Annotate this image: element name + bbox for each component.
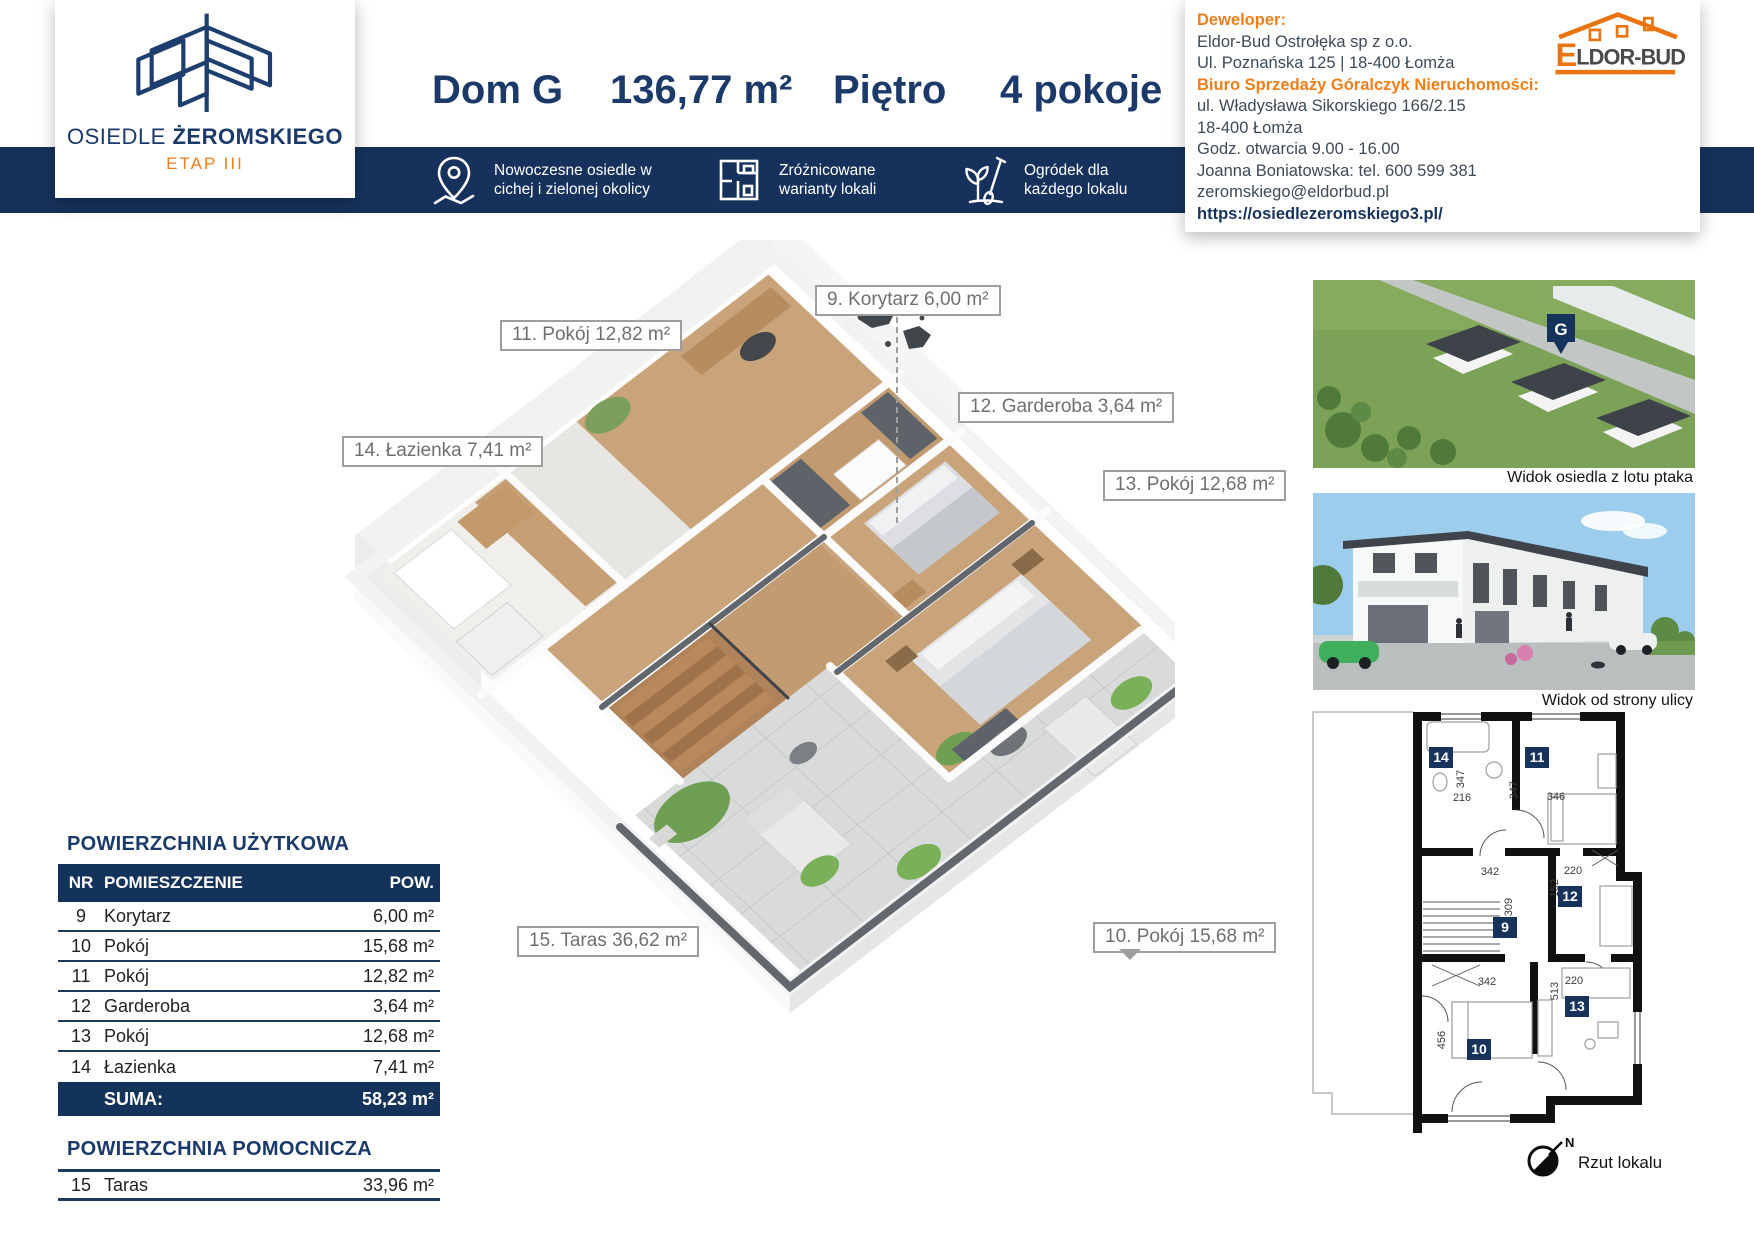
svg-text:513: 513 (1549, 982, 1561, 1000)
flyer-page: Nowoczesne osiedle w cichej i zielonej o… (0, 0, 1754, 1240)
svg-text:309: 309 (1503, 898, 1515, 916)
svg-text:220: 220 (1565, 975, 1583, 987)
row-nr: 9 (58, 906, 104, 927)
website-link[interactable]: https://osiedlezeromskiego3.pl/ (1197, 205, 1443, 223)
row-area: 7,41 m² (330, 1057, 440, 1078)
plan2d-caption: Rzut lokalu (1578, 1153, 1662, 1172)
badge-14: 14 (1433, 749, 1449, 765)
eldorbud-logo-rest: LDOR-BUD (1576, 44, 1685, 69)
row-nr: 12 (58, 996, 104, 1017)
row-name: Taras (104, 1175, 330, 1196)
estate-logo-name-light: OSIEDLE (67, 124, 166, 149)
room-label-pokoj-10: 10. Pokój 15,68 m² (1093, 922, 1276, 953)
room-label-garderoba: 12. Garderoba 3,64 m² (958, 392, 1174, 423)
compass-icon: N (1529, 1135, 1574, 1175)
developer-card: E LDOR-BUD Deweloper: Eldor-Bud Ostrołęk… (1185, 0, 1700, 232)
feature-variants-line2: warianty lokali (779, 180, 876, 199)
table-row: 14 Łazienka 7,41 m² (58, 1052, 440, 1082)
room-label-taras: 15. Taras 36,62 m² (517, 926, 699, 957)
opening-hours: Godz. otwarcia 9.00 - 16.00 (1197, 139, 1688, 161)
estate-logo-card: OSIEDLE ŻEROMSKIEGO ETAP III (55, 0, 355, 198)
photo-street-svg (1313, 493, 1695, 690)
page-title-rooms: 4 pokoje (1000, 68, 1162, 113)
badge-10: 10 (1471, 1041, 1487, 1057)
estate-logo-etap: ETAP III (55, 154, 355, 174)
contact-email: zeromskiego@eldorbud.pl (1197, 182, 1688, 204)
row-nr: 13 (58, 1026, 104, 1047)
feature-variants: Zróżnicowane warianty lokali (713, 147, 876, 213)
room-label-pokoj-13: 13. Pokój 12,68 m² (1103, 470, 1286, 501)
garden-icon (958, 154, 1010, 206)
row-nr: 15 (58, 1175, 104, 1196)
eldorbud-logo-e: E (1555, 36, 1577, 73)
svg-text:220: 220 (1564, 865, 1582, 877)
sales-office-address2: 18-400 Łomża (1197, 118, 1688, 140)
feature-garden: Ogródek dla każdego lokalu (958, 147, 1127, 213)
room-label-lazienka: 14. Łazienka 7,41 m² (342, 436, 543, 467)
feature-garden-line2: każdego lokalu (1024, 180, 1127, 199)
sum-value: 58,23 m² (330, 1089, 440, 1110)
photo-aerial-svg: G (1313, 280, 1695, 468)
photo-aerial-caption: Widok osiedla z lotu ptaka (1313, 469, 1693, 487)
contact-person: Joanna Boniatowska: tel. 600 599 381 (1197, 161, 1688, 183)
aux-table-title: POWIERZCHNIA POMOCNICZA (67, 1138, 440, 1161)
neighbour-outline (1313, 712, 1413, 1114)
feature-location-line2: cichej i zielonej okolicy (494, 180, 652, 199)
room-label-pokoj-11: 11. Pokój 12,82 m² (500, 320, 682, 351)
floorplan-icon (713, 154, 765, 206)
badge-9: 9 (1501, 919, 1509, 935)
compass-north-label: N (1565, 1135, 1574, 1150)
estate-logo-name-bold: ŻEROMSKIEGO (172, 124, 343, 149)
col-nr: NR (58, 873, 104, 893)
page-title-house: Dom G (432, 68, 563, 113)
photo-aerial-view: G (1313, 280, 1695, 468)
aux-table-row: 15 Taras 33,96 m² (58, 1169, 440, 1201)
plan3d-floors (362, 262, 1175, 999)
row-nr: 11 (58, 966, 104, 987)
svg-text:216: 216 (1453, 792, 1471, 804)
svg-text:342: 342 (1478, 976, 1496, 988)
feature-location: Nowoczesne osiedle w cichej i zielonej o… (428, 147, 652, 213)
pin-label: G (1554, 320, 1567, 339)
svg-text:347: 347 (1455, 770, 1467, 788)
badge-13: 13 (1569, 998, 1585, 1014)
badge-11: 11 (1530, 749, 1545, 765)
page-title-area: 136,77 m² (610, 68, 792, 113)
badge-12: 12 (1562, 888, 1578, 904)
table-sum-row: SUMA: 58,23 m² (58, 1082, 440, 1116)
svg-text:346: 346 (1547, 791, 1565, 803)
corridor-pointer-line (896, 317, 898, 523)
row-area: 33,96 m² (330, 1175, 440, 1196)
feature-variants-line1: Zróżnicowane (779, 161, 876, 180)
room-label-korytarz: 9. Korytarz 6,00 m² (815, 285, 1001, 316)
row-nr: 14 (58, 1057, 104, 1078)
floor-plan-2d: 216 347 347 346 342 220 152 309 513 342 … (1300, 702, 1710, 1218)
svg-text:342: 342 (1481, 866, 1499, 878)
estate-logo-name: OSIEDLE ŻEROMSKIEGO (55, 124, 355, 150)
map-pin-icon (428, 154, 480, 206)
row-name: Łazienka (104, 1057, 330, 1078)
row-nr: 10 (58, 936, 104, 957)
feature-garden-line1: Ogródek dla (1024, 161, 1127, 180)
sales-office-address1: ul. Władysława Sikorskiego 166/2.15 (1197, 96, 1688, 118)
estate-logo-icon (105, 6, 305, 128)
page-title-floor: Piętro (833, 68, 946, 113)
room-label-pokoj-10-text: 10. Pokój 15,68 m² (1105, 926, 1264, 947)
feature-location-line1: Nowoczesne osiedle w (494, 161, 652, 180)
svg-text:456: 456 (1436, 1031, 1448, 1049)
eldorbud-logo: E LDOR-BUD (1548, 10, 1688, 78)
stairs-2d (1423, 850, 1618, 986)
label-tail (1119, 949, 1141, 971)
sum-label: SUMA: (104, 1089, 330, 1110)
svg-text:347: 347 (1508, 781, 1520, 799)
photo-street-view (1313, 493, 1695, 690)
floor-plan-3d (275, 240, 1175, 1040)
